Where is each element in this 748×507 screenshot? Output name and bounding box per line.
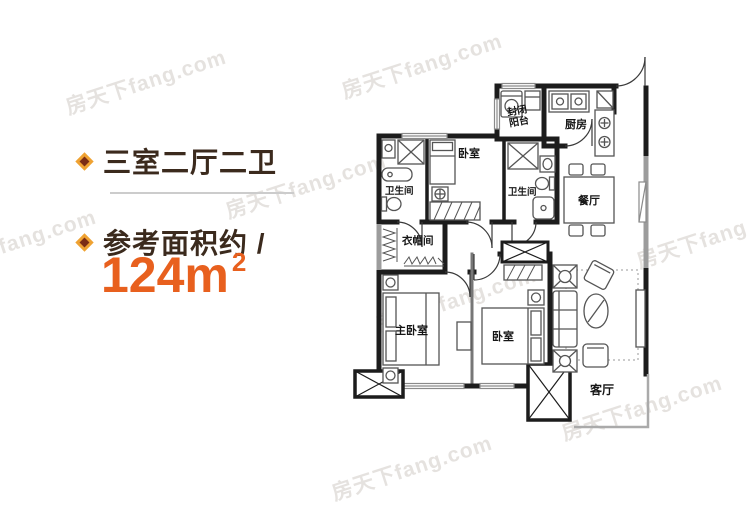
feature-row: 三室二厅二卫 bbox=[78, 141, 277, 181]
room-label-cloakroom: 衣帽间 bbox=[402, 234, 434, 247]
area-superscript: 2 bbox=[232, 247, 246, 277]
area-value: 124m2 bbox=[101, 248, 243, 303]
bedroom2-furniture bbox=[482, 265, 544, 364]
bay-outline bbox=[574, 374, 648, 427]
bathroom2-fixtures bbox=[508, 143, 555, 219]
room-label-dining: 餐厅 bbox=[577, 193, 600, 207]
room-label-living: 客厅 bbox=[589, 382, 614, 397]
layout-title: 三室二厅二卫 bbox=[103, 141, 277, 181]
diamond-bullet-icon bbox=[75, 233, 93, 251]
room-label-bedroom2: 卧室 bbox=[492, 329, 514, 343]
living-room-furniture bbox=[553, 260, 645, 372]
info-panel: 三室二厅二卫 参考面积约 / 124m2 bbox=[0, 0, 350, 498]
diamond-bullet-icon bbox=[75, 152, 93, 170]
floorplan-drawing: 封闭 阳台 厨房 卫生间 卧室 卫生间 餐厅 衣帽间 主卧室 卧室 客厅 bbox=[352, 44, 696, 450]
room-label-bathroom2: 卫生间 bbox=[508, 186, 537, 198]
cloakroom-racks bbox=[383, 228, 444, 266]
room-label-bathroom1: 卫生间 bbox=[385, 185, 414, 197]
bathroom1-fixtures bbox=[382, 140, 425, 211]
area-number: 124m bbox=[101, 247, 229, 303]
floorplan-card: { "header": { "feature_title": "三室二厅二卫",… bbox=[0, 0, 748, 498]
room-label-master: 主卧室 bbox=[395, 323, 428, 337]
room-label-bedroom-top: 卧室 bbox=[458, 146, 480, 160]
divider-line bbox=[110, 192, 294, 194]
room-label-kitchen: 厨房 bbox=[565, 117, 587, 131]
